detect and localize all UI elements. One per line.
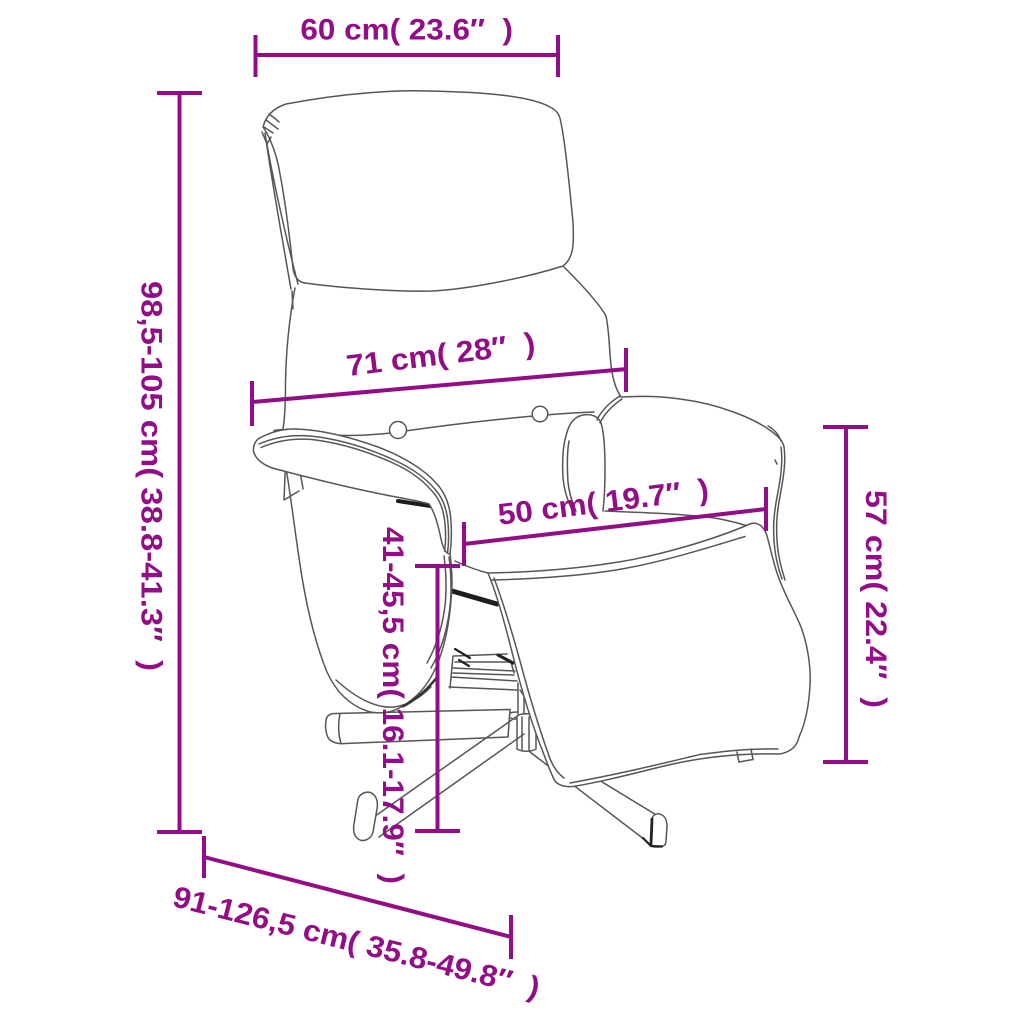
svg-text:60 cm( 23.6″ ): 60 cm( 23.6″ ) <box>300 14 513 47</box>
svg-text:98,5-105 cm( 38.8-41.3″ ): 98,5-105 cm( 38.8-41.3″ ) <box>135 281 168 671</box>
svg-text:91-126,5 cm( 35.8-49.8″ ): 91-126,5 cm( 35.8-49.8″ ) <box>170 881 544 1005</box>
svg-text:71 cm( 28″ ): 71 cm( 28″ ) <box>345 327 538 383</box>
svg-text:41-45,5 cm( 16.1-17.9″ ): 41-45,5 cm( 16.1-17.9″ ) <box>376 527 409 884</box>
svg-text:57 cm( 22.4″ ): 57 cm( 22.4″ ) <box>859 490 892 708</box>
